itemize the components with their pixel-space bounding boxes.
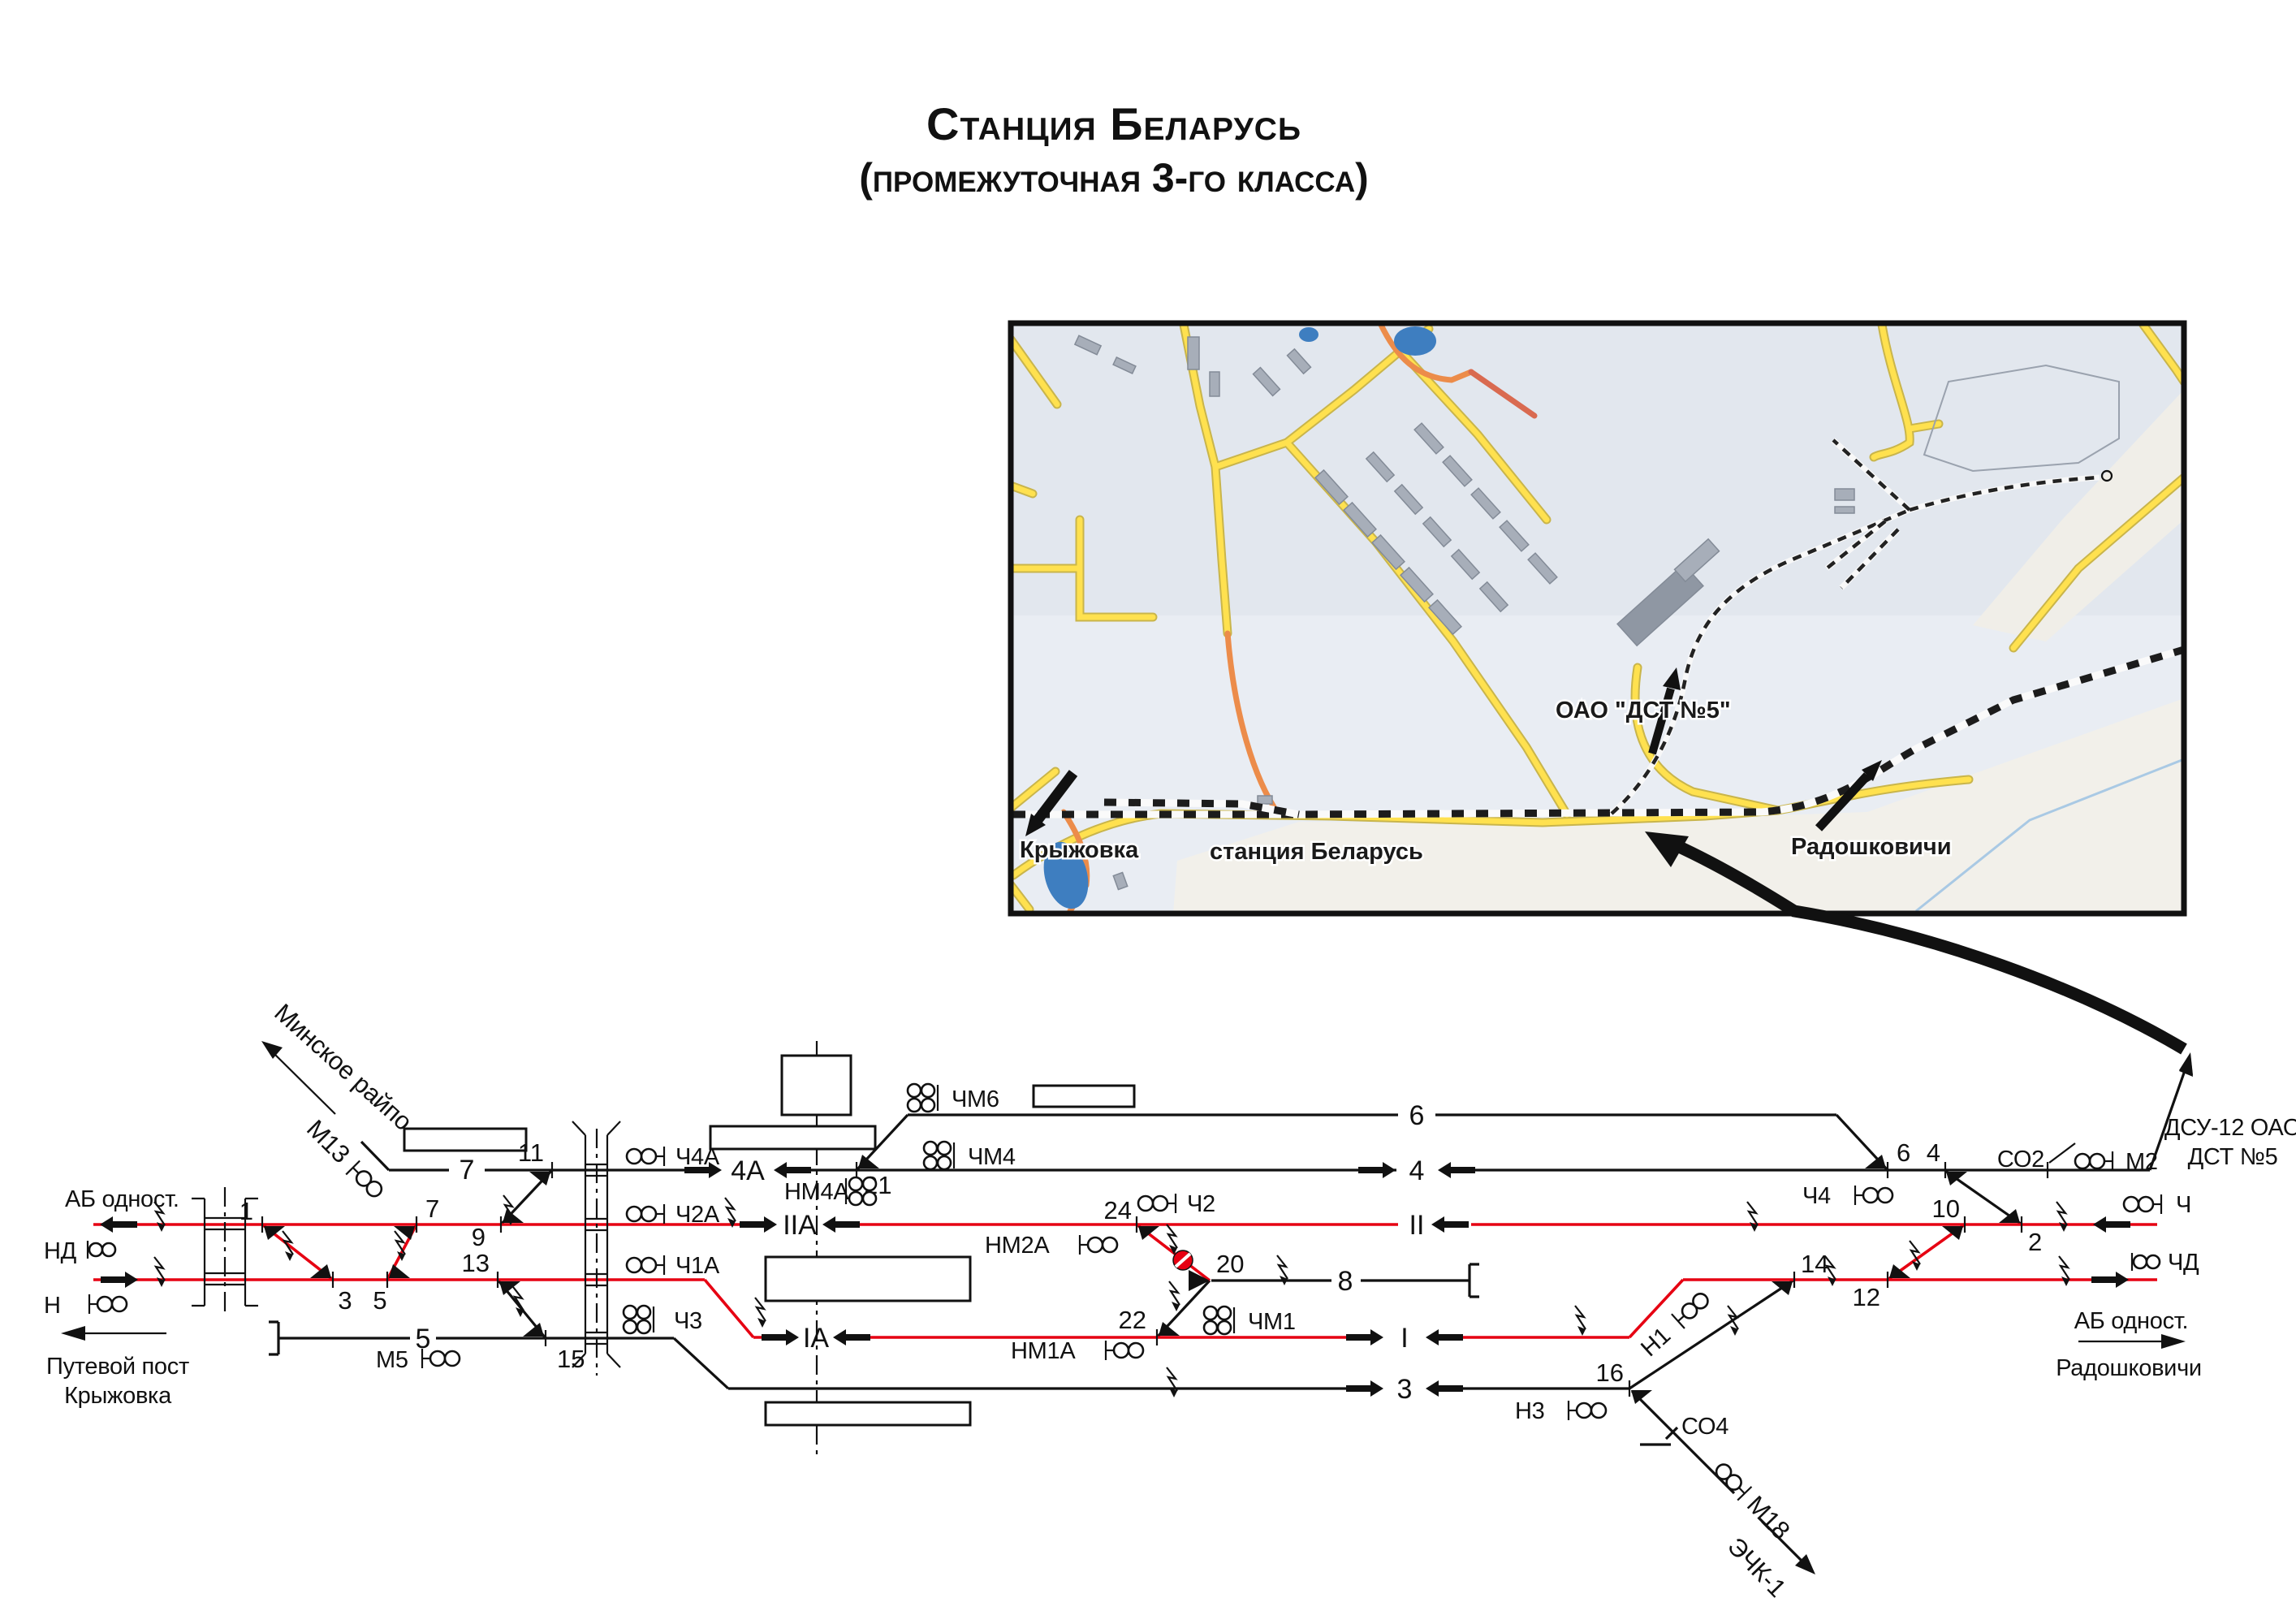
signal-chm4-label: ЧМ4 bbox=[968, 1144, 1016, 1170]
signal-ch2-label: Ч2 bbox=[1187, 1191, 1215, 1217]
dsu-pointer-head bbox=[2179, 1054, 2193, 1077]
signal-ch2a-label: Ч2А bbox=[675, 1202, 720, 1228]
track-8: 8 bbox=[1338, 1266, 1353, 1297]
track-2a: IIА bbox=[783, 1210, 817, 1241]
map-inset: Крыжовка станция Беларусь Радошковичи ОА… bbox=[1011, 323, 2184, 914]
page-title: Станция Беларусь (промежуточная 3-го кла… bbox=[859, 98, 1369, 201]
switch-16: 16 bbox=[1596, 1358, 1624, 1387]
switch-20: 20 bbox=[1216, 1250, 1244, 1278]
track-6: 6 bbox=[1409, 1100, 1425, 1131]
switch-1: 1 bbox=[240, 1197, 253, 1225]
signal-ch1a-label: Ч1А bbox=[675, 1253, 720, 1279]
switch-5: 5 bbox=[373, 1286, 386, 1315]
platform-track6 bbox=[1034, 1086, 1134, 1107]
switch-24: 24 bbox=[1104, 1196, 1132, 1224]
switch-12: 12 bbox=[1853, 1283, 1880, 1311]
switch-6: 6 bbox=[1897, 1138, 1910, 1167]
signal-m18-label: М18 bbox=[1741, 1490, 1795, 1544]
signal-n3-icon bbox=[1569, 1401, 1606, 1420]
map-label-station: станция Беларусь bbox=[1210, 839, 1423, 865]
switch-13: 13 bbox=[462, 1249, 490, 1277]
left-ab-label: АБ одност. bbox=[65, 1186, 179, 1212]
left-exit-arrow-head bbox=[61, 1326, 85, 1341]
platform-track7 bbox=[404, 1129, 526, 1151]
signal-so2-icon bbox=[2049, 1143, 2075, 1163]
right-ab-label: АБ одност. bbox=[2074, 1308, 2189, 1334]
signal-so2-label: СО2 bbox=[1997, 1147, 2044, 1173]
signal-ch2-icon bbox=[1138, 1194, 1176, 1213]
minsk-branch: Минское райпо М13 bbox=[261, 998, 417, 1203]
signal-ch2a-icon bbox=[627, 1204, 664, 1224]
left-n-label: Н bbox=[44, 1293, 61, 1319]
title-line2: (промежуточная 3-го класса) bbox=[859, 155, 1369, 201]
platform-island bbox=[766, 1257, 970, 1301]
minsk-arrow-head bbox=[261, 1041, 283, 1059]
signal-ch4a-label: Ч4А bbox=[675, 1144, 720, 1170]
left-post-line2: Крыжовка bbox=[64, 1383, 172, 1409]
signal-n-icon bbox=[89, 1294, 127, 1314]
dsu-label-line2: ДСТ №5 bbox=[2188, 1144, 2278, 1170]
right-exit-arrow-head bbox=[2161, 1334, 2186, 1349]
approach-left: АБ одност. НД Н Путевой пост Крыжовка bbox=[44, 1186, 189, 1409]
signal-ch4-label: Ч4 bbox=[1802, 1183, 1831, 1209]
signal-nm4a-label: НМ4А bbox=[784, 1179, 849, 1205]
track-1: I bbox=[1400, 1323, 1408, 1354]
signal-chm1-icon bbox=[1204, 1307, 1234, 1334]
switch-4: 4 bbox=[1927, 1138, 1940, 1167]
station-diagram: Станция Беларусь (промежуточная 3-го кла… bbox=[0, 0, 2296, 1624]
map-label-kryzhovka: Крыжовка bbox=[1020, 837, 1139, 863]
signal-ch-label: Ч bbox=[2176, 1192, 2191, 1218]
signal-chm6-label: ЧМ6 bbox=[952, 1086, 999, 1112]
signal-chm4-icon bbox=[924, 1142, 954, 1169]
switch-7: 7 bbox=[425, 1194, 439, 1223]
switch-14: 14 bbox=[1801, 1250, 1828, 1278]
station-building bbox=[782, 1056, 851, 1115]
signal-ch4-icon bbox=[1855, 1186, 1892, 1205]
signal-ch3-label: Ч3 bbox=[674, 1308, 702, 1334]
signal-ch4a-icon bbox=[627, 1147, 664, 1166]
signal-n1: Н1 bbox=[1636, 1287, 1715, 1362]
track-1a: IА bbox=[803, 1323, 829, 1354]
signal-chm6-icon bbox=[908, 1084, 938, 1112]
signal-m18: М18 bbox=[1709, 1457, 1796, 1545]
page: Станция Беларусь (промежуточная 3-го кла… bbox=[0, 0, 2296, 1624]
platform-track4a bbox=[710, 1126, 875, 1149]
signal-nm1a-label: НМ1А bbox=[1011, 1338, 1076, 1364]
track-3: 3 bbox=[1397, 1374, 1413, 1405]
signal-chd-icon bbox=[2132, 1253, 2160, 1271]
signal-m13-icon bbox=[346, 1160, 386, 1200]
signal-ch3-icon bbox=[624, 1306, 654, 1333]
signal-m13-label: М13 bbox=[301, 1114, 356, 1168]
eck-branch: СО4 М18 ЭЧК-1 bbox=[1681, 1414, 1795, 1603]
switch-15: 15 bbox=[557, 1345, 585, 1373]
dsu-label-line1: ДСУ-12 ОАО bbox=[2164, 1115, 2296, 1141]
left-post-line1: Путевой пост bbox=[46, 1354, 189, 1380]
map-label-radoshkovichi: Радошковичи bbox=[1791, 834, 1952, 860]
track-7: 7 bbox=[460, 1155, 475, 1186]
signal-chm1-label: ЧМ1 bbox=[1248, 1309, 1296, 1335]
eck-dest-label: ЭЧК-1 bbox=[1722, 1532, 1792, 1603]
signal-ch-icon bbox=[2124, 1194, 2161, 1214]
minsk-dest-label: Минское райпо bbox=[269, 998, 417, 1136]
title-line1: Станция Беларусь bbox=[926, 98, 1301, 149]
track-scheme: 1 3 5 7 9 11 13 15 21 24 20 22 16 14 12 … bbox=[44, 998, 2296, 1602]
approach-right: СО2 М2 ДСУ-12 ОАО ДСТ №5 Ч ЧД АБ одност.… bbox=[1997, 1054, 2296, 1381]
map-region-north bbox=[1011, 323, 2184, 615]
switch-9: 9 bbox=[472, 1223, 486, 1251]
signals: Ч4А Ч2А Ч1А Ч3 ЧМ6 ЧМ4 ЧМ1 НМ4А НМ2А НМ1… bbox=[376, 1084, 1892, 1424]
platform-track3 bbox=[766, 1402, 970, 1425]
signal-n1-label: Н1 bbox=[1636, 1323, 1676, 1362]
switch-2: 2 bbox=[2028, 1228, 2042, 1256]
signal-nm2a-icon bbox=[1080, 1235, 1117, 1255]
signal-nd-icon bbox=[88, 1241, 115, 1259]
switch-10: 10 bbox=[1932, 1194, 1960, 1223]
right-dest-label: Радошковичи bbox=[2056, 1355, 2202, 1381]
map-label-dst: ОАО "ДСТ №5" bbox=[1556, 698, 1731, 723]
switch-11: 11 bbox=[518, 1138, 544, 1167]
signal-m18-icon bbox=[1711, 1460, 1751, 1501]
signal-ch1a-icon bbox=[627, 1255, 664, 1275]
left-nd-label: НД bbox=[44, 1238, 77, 1264]
signal-m2-label: М2 bbox=[2126, 1149, 2158, 1175]
signal-nm1a-icon bbox=[1106, 1341, 1143, 1360]
signal-m5-label: М5 bbox=[376, 1347, 408, 1373]
signal-so4-label: СО4 bbox=[1681, 1414, 1728, 1440]
derail-red-dot bbox=[1173, 1250, 1193, 1270]
signal-nm2a-label: НМ2А bbox=[985, 1233, 1050, 1259]
switch-22: 22 bbox=[1119, 1306, 1146, 1334]
signal-m2-icon bbox=[2075, 1151, 2113, 1171]
track-2: II bbox=[1409, 1210, 1425, 1241]
track-4a: 4А bbox=[731, 1155, 765, 1186]
signal-n3-label: Н3 bbox=[1515, 1398, 1544, 1424]
signal-chd-label: ЧД bbox=[2168, 1250, 2199, 1276]
track-4: 4 bbox=[1409, 1155, 1425, 1186]
switch-3: 3 bbox=[338, 1286, 352, 1315]
signal-n1-icon bbox=[1672, 1289, 1712, 1328]
